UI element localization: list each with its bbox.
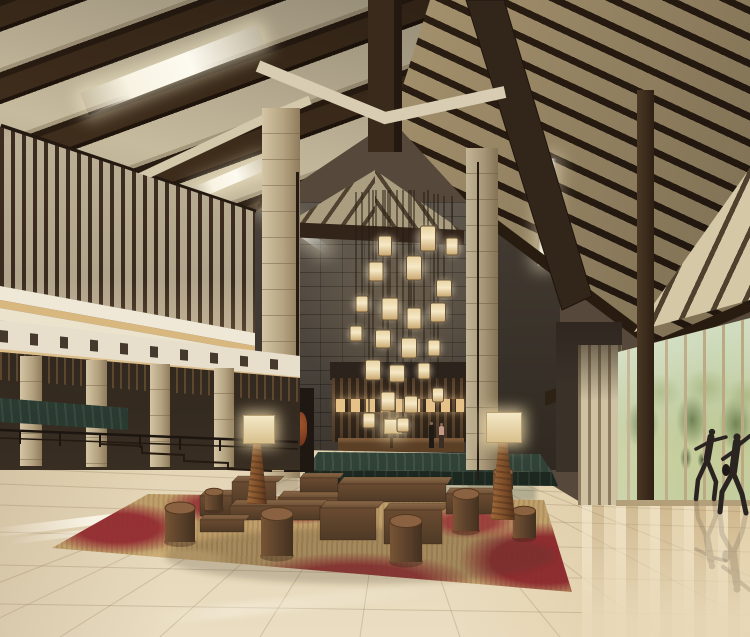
tai-chi-figures xyxy=(0,0,750,637)
lobby-rendering xyxy=(0,0,750,637)
tai-chi-person-2 xyxy=(720,433,750,513)
